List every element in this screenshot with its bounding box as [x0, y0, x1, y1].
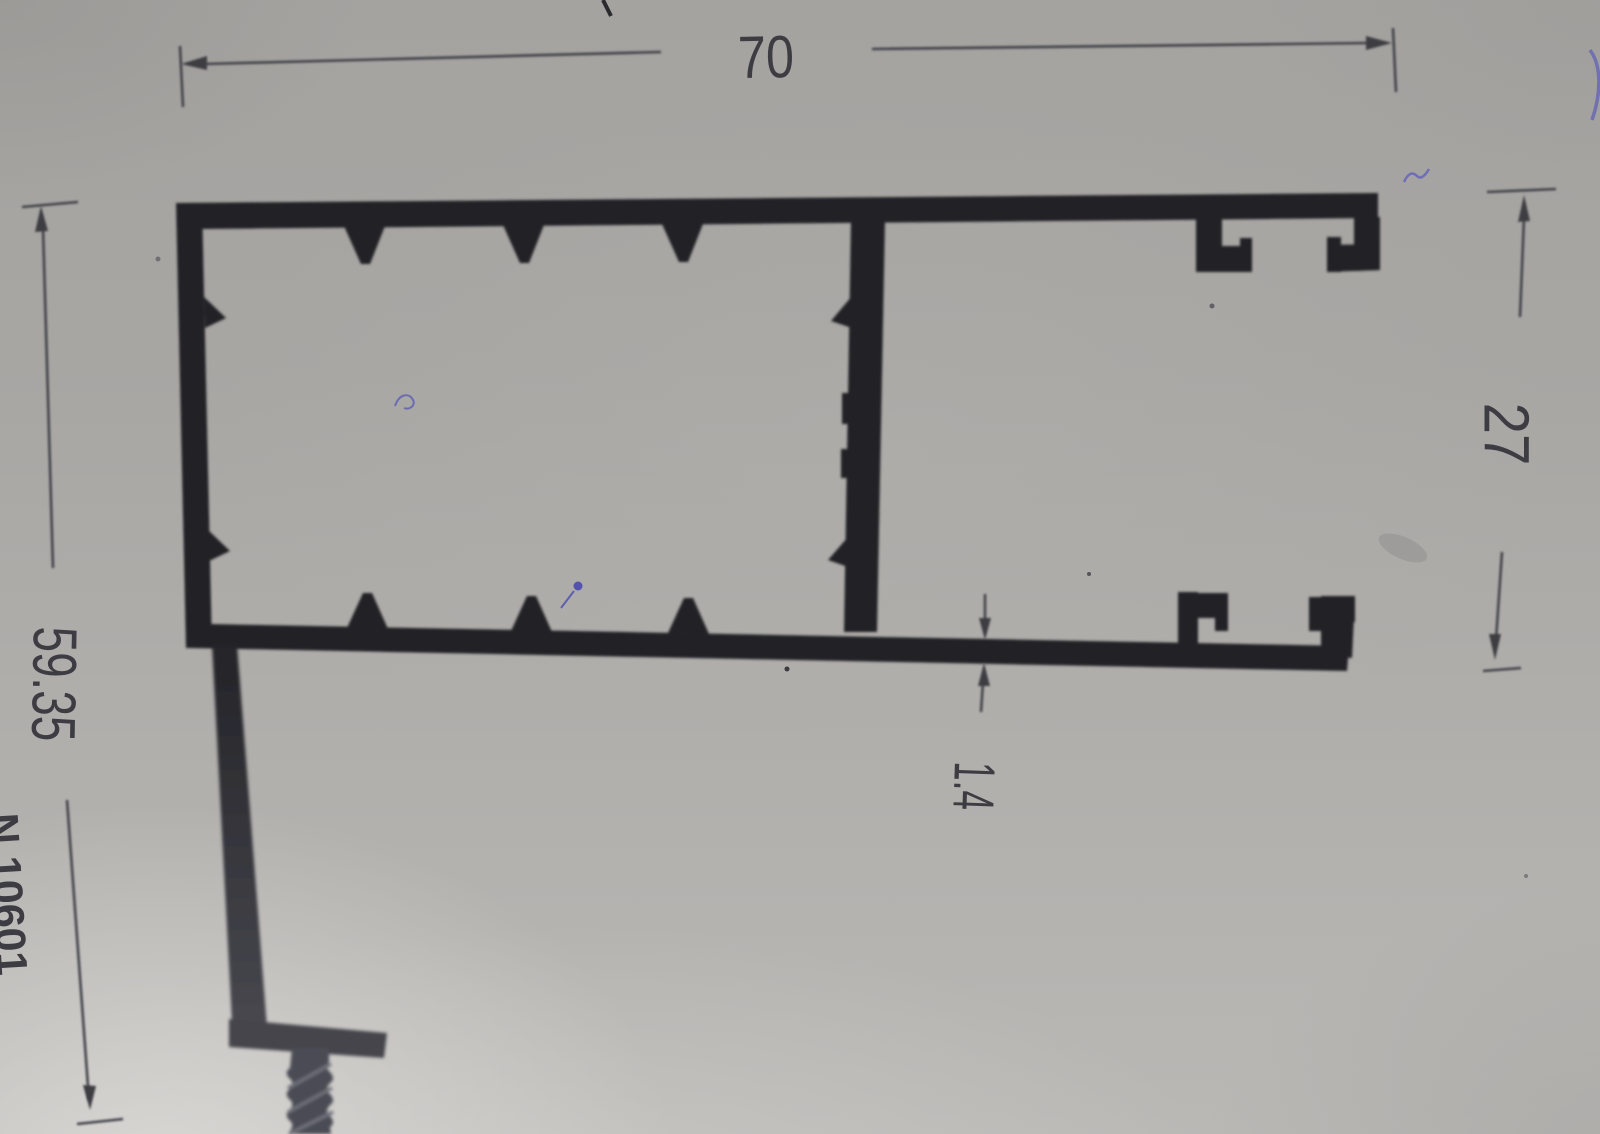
svg-text:N 10601: N 10601 [0, 812, 36, 977]
svg-text:59.35: 59.35 [18, 626, 89, 742]
svg-text:70: 70 [737, 23, 794, 91]
svg-text:27: 27 [1471, 403, 1543, 466]
svg-text:1.4: 1.4 [940, 761, 1006, 812]
